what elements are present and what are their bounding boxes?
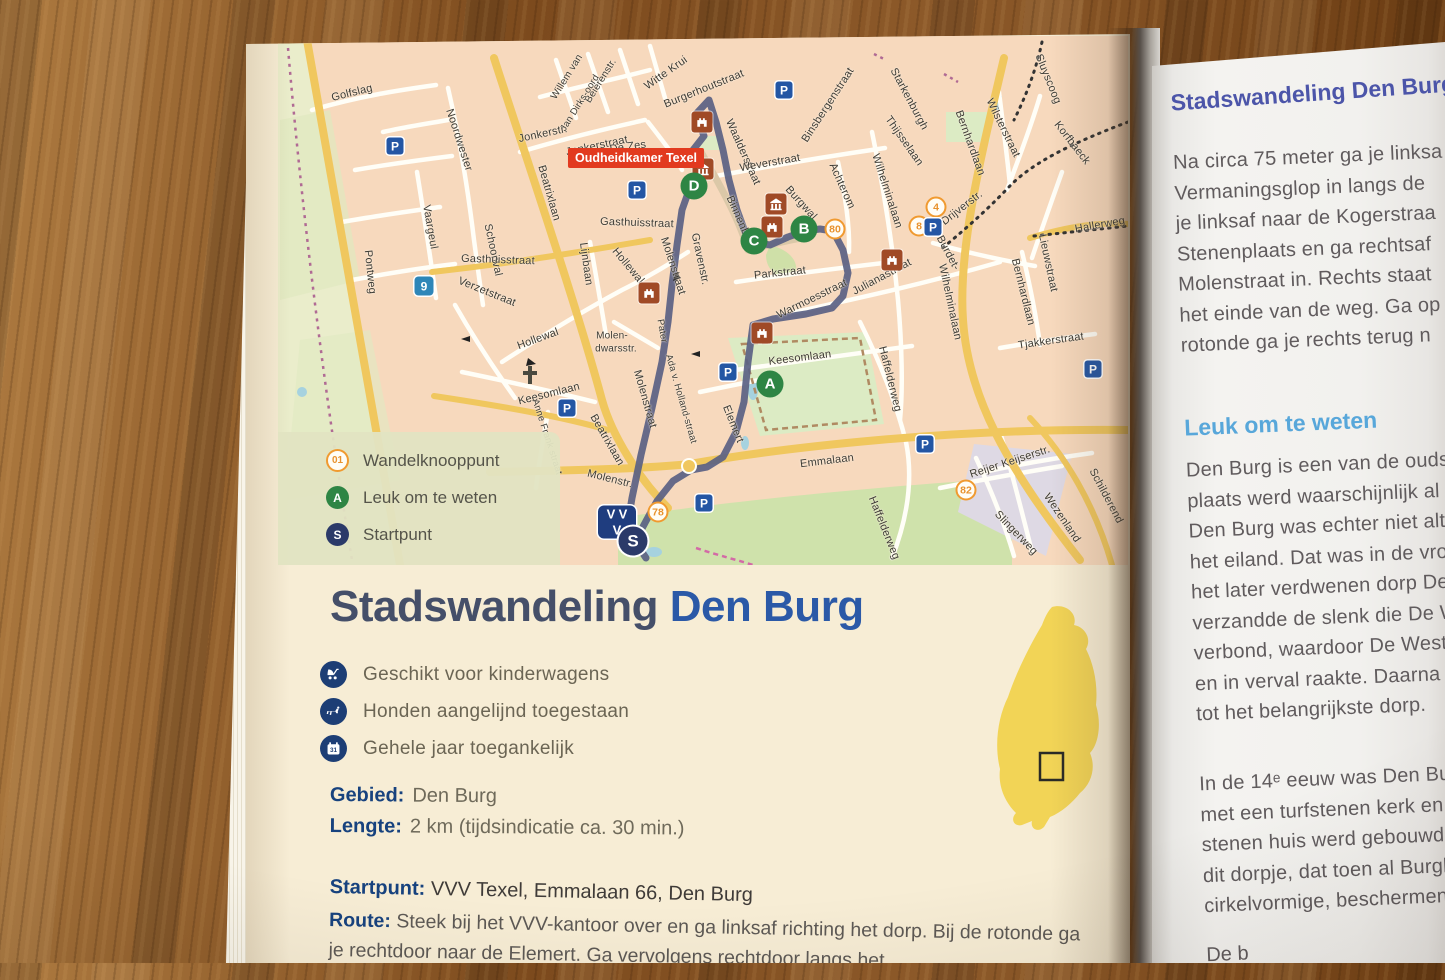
feature-strollers: Geschikt voor kinderwagens bbox=[320, 656, 629, 693]
stroller-icon bbox=[320, 661, 347, 688]
street-label: Hollewal bbox=[610, 246, 647, 287]
legend-label: Leuk om te weten bbox=[363, 488, 497, 508]
feature-list: Geschikt voor kinderwagens Honden aangel… bbox=[320, 656, 629, 767]
parking-icon: P bbox=[925, 219, 942, 236]
detail-value: Den Burg bbox=[412, 785, 497, 817]
right-page-text: Stadswandeling Den Burg Na circa 75 mete… bbox=[1168, 27, 1445, 962]
street-label: Keesomlaan bbox=[768, 348, 832, 368]
street-label: Bernhardlaan bbox=[953, 109, 988, 177]
detail-gebied: Gebied: Den Burg bbox=[330, 784, 685, 817]
street-label: Emmalaan bbox=[799, 452, 854, 471]
street-label: Gasthuisstraat bbox=[600, 216, 674, 231]
map-legend: 01 Wandelknooppunt A Leuk om te weten S … bbox=[278, 432, 560, 565]
route-paragraph: Na circa 75 meter ga je linksaVermanings… bbox=[1173, 135, 1445, 362]
detail-lengte: Lengte: 2 km (tijdsindicatie ca. 30 min.… bbox=[330, 815, 685, 848]
street-label: Molenstr. bbox=[586, 468, 634, 491]
detail-value: 2 km (tijdsindicatie ca. 30 min.) bbox=[410, 816, 685, 849]
street-label: Binsbergenstraat bbox=[799, 66, 856, 145]
street-label: Haffelderweg bbox=[866, 495, 902, 562]
street-label: Korfbaeck bbox=[1051, 119, 1092, 167]
poi-marker-icon: A bbox=[326, 486, 349, 509]
street-label: Sluyscoog bbox=[1033, 52, 1064, 105]
route-value: Steek bij het VVV-kantoor over en ga lin… bbox=[328, 910, 1080, 971]
history-paragraph: Den Burg is een van de oudsplaats werd w… bbox=[1185, 442, 1445, 730]
street-label: Wezenland bbox=[1041, 491, 1083, 545]
museum-icon bbox=[766, 194, 787, 215]
street-label: dwarsstr. bbox=[595, 344, 637, 355]
feature-label: Honden aangelijnd toegestaan bbox=[363, 701, 629, 723]
calendar-day: 31 bbox=[330, 747, 338, 754]
photo-of-guidebook: { "colors":{ "green":"#2e8544","red":"#e… bbox=[0, 0, 1445, 963]
street-label: Tjakkerstraat bbox=[1017, 330, 1084, 351]
title-part2: Den Burg bbox=[670, 582, 864, 631]
feature-label: Gehele jaar toegankelijk bbox=[363, 738, 574, 760]
street-label: Noordwester bbox=[443, 107, 474, 172]
street-label: Golfslag bbox=[330, 82, 374, 104]
parking-icon: P bbox=[720, 364, 737, 381]
walking-junction-marker: 80 bbox=[825, 219, 846, 240]
street-label: Reijer Keijserstr. bbox=[968, 443, 1051, 480]
right-page-heading: Stadswandeling Den Burg bbox=[1170, 70, 1445, 116]
street-label: Lijnbaan bbox=[577, 242, 595, 286]
street-label: Waalderstraat bbox=[723, 117, 763, 186]
route-marker-a: A bbox=[757, 371, 784, 398]
street-label: Bernhardlaan bbox=[1009, 257, 1037, 326]
parking-icon: P bbox=[559, 400, 576, 417]
street-label: Wilsterstraat bbox=[984, 97, 1023, 160]
start-marker-icon: S bbox=[326, 523, 349, 546]
detail-label: Gebied: bbox=[330, 784, 405, 816]
calendar-icon: 31 bbox=[320, 735, 347, 762]
street-label: Haffelderweg bbox=[876, 345, 904, 413]
street-label: Pater bbox=[655, 318, 670, 343]
route-marker-b: B bbox=[791, 216, 818, 243]
museum-icon bbox=[639, 283, 660, 304]
street-label: Parkstraat bbox=[753, 264, 806, 281]
parking-icon: P bbox=[917, 436, 934, 453]
startpunt-value: VVV Texel, Emmalaan 66, Den Burg bbox=[431, 878, 753, 906]
legend-item-poi: A Leuk om te weten bbox=[326, 479, 560, 516]
street-label: Molenstraat bbox=[631, 369, 659, 430]
page-title: Stadswandeling Den Burg bbox=[330, 582, 864, 632]
street-label: Schoonval bbox=[482, 223, 505, 278]
parking-icon: P bbox=[387, 138, 404, 155]
parking-icon: P bbox=[629, 182, 646, 199]
vvv-letter: V bbox=[605, 508, 617, 519]
route-label: Route: bbox=[329, 909, 391, 932]
museum-icon bbox=[752, 323, 773, 344]
street-label: Witte Krui bbox=[642, 54, 690, 92]
feature-dogs: Honden aangelijnd toegestaan bbox=[320, 693, 629, 730]
legend-item-start: S Startpunt bbox=[326, 516, 560, 553]
street-label: Molen- bbox=[596, 331, 628, 342]
texel-island-icon bbox=[990, 605, 1110, 833]
oudheidkamer-label: Oudheidkamer Texel bbox=[568, 148, 704, 168]
feature-label: Geschikt voor kinderwagens bbox=[363, 664, 609, 686]
start-point-marker: S bbox=[619, 527, 648, 556]
parking-icon: P bbox=[1085, 361, 1102, 378]
street-label: Beatrixlaan bbox=[535, 164, 562, 222]
detail-label: Lengte: bbox=[330, 815, 402, 847]
start-route-block: Startpunt: VVV Texel, Emmalaan 66, Den B… bbox=[328, 876, 1086, 979]
parking-icon: P bbox=[776, 82, 793, 99]
feature-year-round: 31 Gehele jaar toegankelijk bbox=[320, 730, 629, 767]
subheading-leuk-om-te-weten: Leuk om te weten bbox=[1184, 407, 1378, 442]
street-label: Warmoesstraat bbox=[775, 277, 849, 321]
route-marker-c: C bbox=[741, 228, 768, 255]
street-label: Lieuwstraat bbox=[1036, 233, 1060, 293]
junction-marker-icon: 01 bbox=[326, 449, 349, 472]
den-burg-walking-map: GolfslagNoordwesterVaargeulSchoonvalGast… bbox=[278, 36, 1128, 565]
cycle-junction-marker: 9 bbox=[415, 277, 434, 296]
parking-icon: P bbox=[696, 495, 713, 512]
street-label: Verzetstraat bbox=[456, 275, 517, 309]
dog-icon bbox=[320, 698, 347, 725]
walking-junction-marker: 78 bbox=[648, 502, 669, 523]
street-label: Molenstraat bbox=[658, 236, 688, 296]
museum-icon bbox=[882, 250, 903, 271]
street-label: Gasthuisstraat bbox=[461, 253, 535, 268]
street-label: Vaargeul bbox=[420, 204, 440, 250]
street-label: Wilhelminalaan bbox=[869, 152, 904, 229]
walking-junction-marker: 82 bbox=[956, 480, 977, 501]
route-marker-d: D bbox=[681, 173, 708, 200]
startpunt-label: Startpunt: bbox=[330, 876, 426, 900]
legend-item-junction: 01 Wandelknooppunt bbox=[326, 442, 560, 479]
street-label: Beatrixlaan bbox=[587, 412, 626, 468]
street-label: Wilhelminalaan bbox=[936, 263, 964, 341]
street-label: Slingerweg bbox=[992, 509, 1040, 558]
right-page: Stadswandeling Den Burg Na circa 75 mete… bbox=[1152, 40, 1445, 963]
walking-junction-marker: 4 bbox=[926, 197, 947, 218]
street-label: Hollewal bbox=[516, 326, 561, 352]
street-label: Gravenstr. bbox=[689, 232, 712, 286]
street-label: Elemert bbox=[720, 404, 746, 445]
street-label: Pontweg bbox=[362, 249, 379, 294]
history-paragraph-2: In de 14ᵉ eeuw was Den Burgmet een turfs… bbox=[1199, 756, 1445, 922]
clipped-line: De b bbox=[1206, 942, 1249, 967]
vvv-letter: V bbox=[617, 508, 629, 519]
legend-label: Startpunt bbox=[363, 525, 432, 545]
museum-icon bbox=[692, 112, 713, 133]
route-description: Route: Steek bij het VVV-kantoor over en… bbox=[328, 905, 1085, 980]
title-part1: Stadswandeling bbox=[330, 582, 658, 631]
walk-details: Gebied: Den Burg Lengte: 2 km (tijdsindi… bbox=[330, 784, 685, 848]
street-label: Ada v. Holland-straat bbox=[663, 353, 699, 445]
left-page: GolfslagNoordwesterVaargeulSchoonvalGast… bbox=[246, 30, 1130, 963]
street-label: Achterom bbox=[827, 161, 858, 210]
legend-label: Wandelknooppunt bbox=[363, 451, 499, 471]
